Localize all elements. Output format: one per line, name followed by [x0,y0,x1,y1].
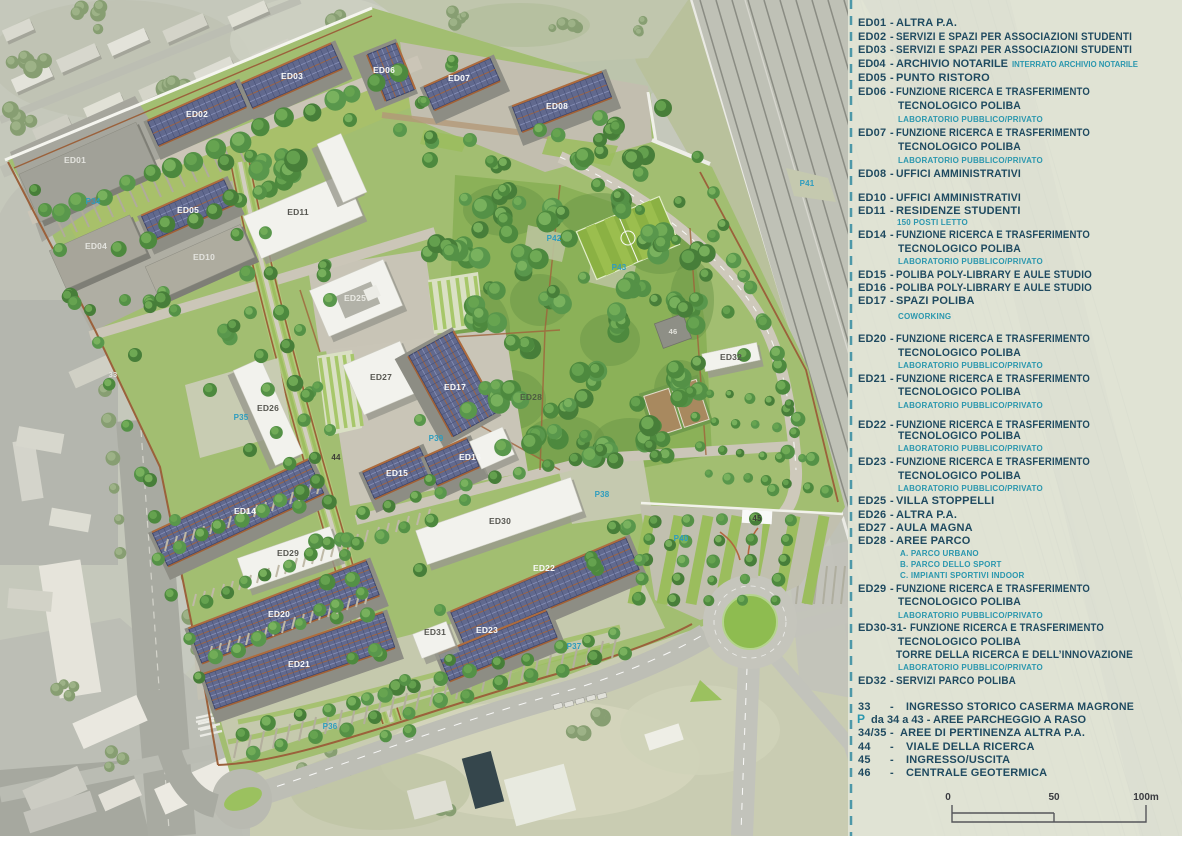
svg-text:TECNOLOGICO POLIBA: TECNOLOGICO POLIBA [898,347,1021,359]
svg-text:ED27-AULA MAGNA: ED27-AULA MAGNA [858,522,973,534]
svg-text:ED23-FUNZIONE RICERCA E TRASFE: ED23-FUNZIONE RICERCA E TRASFERIMENTO [858,456,1090,468]
svg-text:ED28-AREE PARCO: ED28-AREE PARCO [858,535,971,547]
svg-text:LABORATORIO PUBBLICO/PRIVATO: LABORATORIO PUBBLICO/PRIVATO [898,401,1043,410]
svg-text:LABORATORIO PUBBLICO/PRIVATO: LABORATORIO PUBBLICO/PRIVATO [898,257,1043,266]
svg-text:ED08-UFFICI AMMINISTRATIVI: ED08-UFFICI AMMINISTRATIVI [858,168,1021,180]
svg-text:ED02-SERVIZI E SPAZI PER ASSOC: ED02-SERVIZI E SPAZI PER ASSOCIAZIONI ST… [858,31,1132,43]
svg-text:ED30-31-FUNZIONE RICERCA E TRA: ED30-31-FUNZIONE RICERCA E TRASFERIMENTO [858,622,1104,634]
svg-text:ED29-FUNZIONE RICERCA E TRASFE: ED29-FUNZIONE RICERCA E TRASFERIMENTO [858,583,1090,595]
svg-text:TORRE DELLA RICERCA E DELL’INN: TORRE DELLA RICERCA E DELL’INNOVAZIONE [896,649,1133,661]
svg-text:B. PARCO DELLO SPORT: B. PARCO DELLO SPORT [900,560,1002,569]
svg-text:ED17-SPAZI POLIBA: ED17-SPAZI POLIBA [858,295,975,307]
svg-text:TECNOLOGICO POLIBA: TECNOLOGICO POLIBA [898,636,1021,648]
svg-text:TECNOLOGICO POLIBA: TECNOLOGICO POLIBA [898,470,1021,482]
svg-text:TECNOLOGICO POLIBA: TECNOLOGICO POLIBA [898,141,1021,153]
svg-text:ED01-ALTRA P.A.: ED01-ALTRA P.A. [858,17,957,29]
svg-text:34/35-AREE DI PERTINENZA ALTRA: 34/35-AREE DI PERTINENZA ALTRA P.A. [858,727,1085,739]
svg-text:C. IMPIANTI SPORTIVI INDOOR: C. IMPIANTI SPORTIVI INDOOR [900,571,1025,580]
svg-text:50: 50 [1048,792,1060,803]
svg-text:LABORATORIO PUBBLICO/PRIVATO: LABORATORIO PUBBLICO/PRIVATO [898,156,1043,165]
svg-text:ED04-ARCHIVIO NOTARILEINTERRAT: ED04-ARCHIVIO NOTARILEINTERRATO ARCHIVIO… [858,58,1139,70]
svg-text:ED06-FUNZIONE RICERCA E TRASFE: ED06-FUNZIONE RICERCA E TRASFERIMENTO [858,86,1090,98]
svg-text:150 POSTI LETTO: 150 POSTI LETTO [897,218,968,227]
svg-text:TECNOLOGICO POLIBA: TECNOLOGICO POLIBA [898,430,1021,442]
svg-text:LABORATORIO PUBBLICO/PRIVATO: LABORATORIO PUBBLICO/PRIVATO [898,611,1043,620]
svg-text:P da 34 a 43 - AREE PARCHEGGIO: P da 34 a 43 - AREE PARCHEGGIO A RASO [857,712,1086,726]
svg-text:ED26-ALTRA P.A.: ED26-ALTRA P.A. [858,509,957,521]
svg-text:A. PARCO URBANO: A. PARCO URBANO [900,549,979,558]
svg-text:ED05-PUNTO RISTORO: ED05-PUNTO RISTORO [858,72,990,84]
svg-text:LABORATORIO PUBBLICO/PRIVATO: LABORATORIO PUBBLICO/PRIVATO [898,115,1043,124]
svg-text:ED07-FUNZIONE RICERCA E TRASFE: ED07-FUNZIONE RICERCA E TRASFERIMENTO [858,127,1090,139]
svg-text:ED16-POLIBA POLY-LIBRARY E AUL: ED16-POLIBA POLY-LIBRARY E AULE STUDIO [858,282,1092,294]
svg-text:LABORATORIO PUBBLICO/PRIVATO: LABORATORIO PUBBLICO/PRIVATO [898,663,1043,672]
svg-text:TECNOLOGICO POLIBA: TECNOLOGICO POLIBA [898,386,1021,398]
svg-text:COWORKING: COWORKING [898,312,951,321]
svg-text:ED10-UFFICI AMMINISTRATIVI: ED10-UFFICI AMMINISTRATIVI [858,192,1021,204]
svg-text:ED21-FUNZIONE RICERCA E TRASFE: ED21-FUNZIONE RICERCA E TRASFERIMENTO [858,373,1090,385]
svg-text:0: 0 [945,792,951,803]
svg-text:100m: 100m [1133,792,1159,803]
svg-text:ED32-SERVIZI PARCO POLIBA: ED32-SERVIZI PARCO POLIBA [858,675,1016,687]
svg-text:LABORATORIO PUBBLICO/PRIVATO: LABORATORIO PUBBLICO/PRIVATO [898,484,1043,493]
svg-text:TECNOLOGICO POLIBA: TECNOLOGICO POLIBA [898,243,1021,255]
svg-text:ED14-FUNZIONE RICERCA E TRASFE: ED14-FUNZIONE RICERCA E TRASFERIMENTO [858,229,1090,241]
svg-text:LABORATORIO PUBBLICO/PRIVATO: LABORATORIO PUBBLICO/PRIVATO [898,361,1043,370]
svg-text:TECNOLOGICO POLIBA: TECNOLOGICO POLIBA [898,100,1021,112]
svg-text:ED11-RESIDENZE STUDENTI: ED11-RESIDENZE STUDENTI [858,205,1021,217]
svg-text:TECNOLOGICO POLIBA: TECNOLOGICO POLIBA [898,596,1021,608]
svg-text:ED15-POLIBA POLY-LIBRARY E AUL: ED15-POLIBA POLY-LIBRARY E AULE STUDIO [858,269,1092,281]
svg-text:LABORATORIO PUBBLICO/PRIVATO: LABORATORIO PUBBLICO/PRIVATO [898,444,1043,453]
svg-text:ED03-SERVIZI E SPAZI PER ASSOC: ED03-SERVIZI E SPAZI PER ASSOCIAZIONI ST… [858,44,1132,56]
svg-text:ED20-FUNZIONE RICERCA E TRASFE: ED20-FUNZIONE RICERCA E TRASFERIMENTO [858,333,1090,345]
svg-text:ED25-VILLA STOPPELLI: ED25-VILLA STOPPELLI [858,495,994,507]
